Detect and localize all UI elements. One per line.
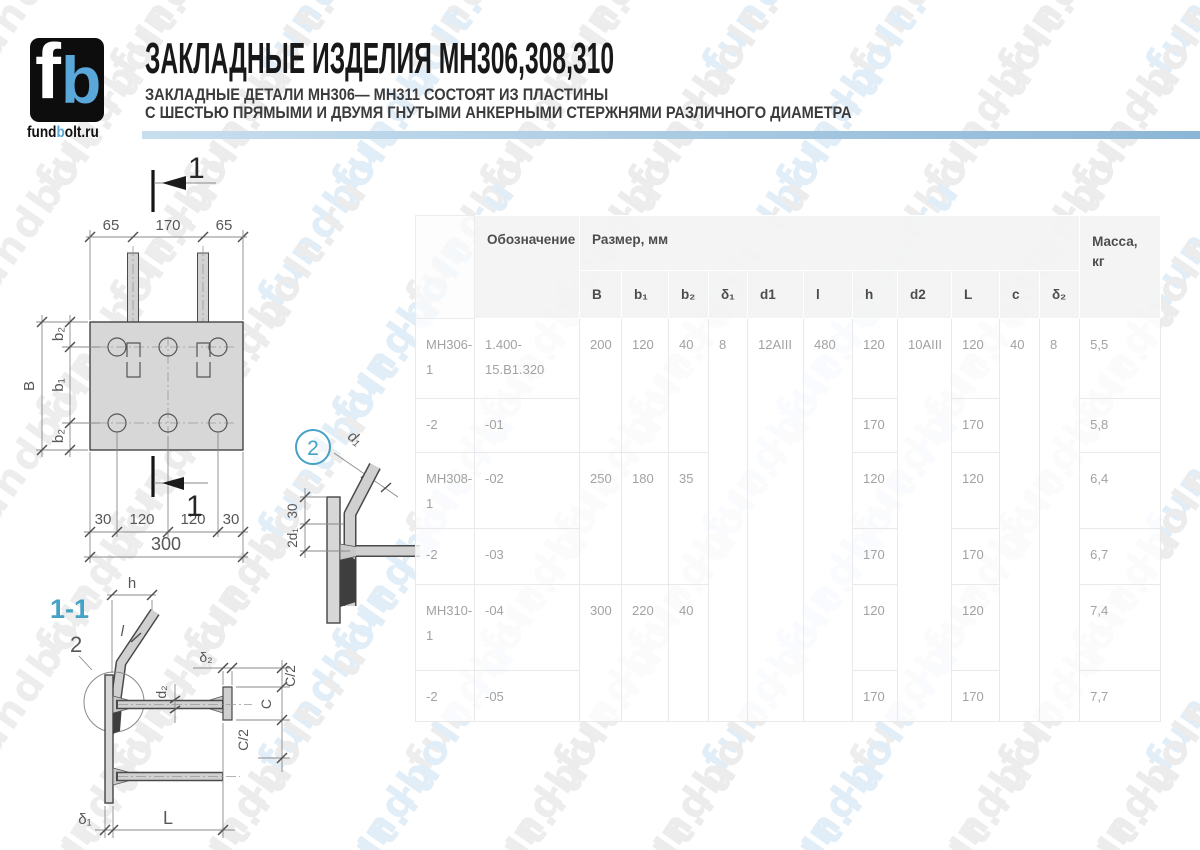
cell-designation: -03 (475, 529, 580, 585)
cell-name: МН310-1 (416, 585, 475, 671)
cell-designation: -02 (475, 453, 580, 529)
cell-L: 120 (952, 319, 1000, 399)
cell-b1: 180 (622, 453, 669, 585)
dim-d2-label: d₂ (153, 685, 169, 698)
logo-letter-f: f (35, 38, 61, 117)
header-col-b1: b₁ (622, 271, 669, 319)
dim-L-label: L (163, 808, 173, 828)
cell-designation: -05 (475, 671, 580, 722)
header-mass: Масса, кг (1080, 216, 1161, 319)
dim-top-left: 65 (103, 217, 120, 234)
detail-2-view: 2 d₁ 30 2d₁ (285, 428, 420, 623)
detail-bubble-2: 2 (307, 437, 319, 460)
header-size-mm: Размер, мм (580, 216, 1080, 271)
cell-h: 170 (853, 671, 898, 722)
dim-30-label: 30 (285, 503, 300, 518)
cell-mass: 7,4 (1080, 585, 1161, 671)
fundbolt-logo: f b (30, 38, 104, 122)
cell-l: 480 (804, 319, 853, 722)
cell-h: 170 (853, 529, 898, 585)
header-empty (416, 216, 475, 319)
dim-bottom-30-right: 30 (223, 511, 240, 528)
section-1-1-view: 1-1 h l 2 (50, 575, 298, 838)
dim-bottom-120-left: 120 (129, 511, 154, 528)
cell-designation: -04 (475, 585, 580, 671)
plan-view: 1 65 170 65 (21, 152, 248, 563)
cell-B: 250 (580, 453, 622, 585)
header-designation: Обозначение (475, 216, 580, 319)
dim-bottom-300: 300 (151, 534, 181, 554)
cell-B: 300 (580, 585, 622, 722)
cell-delta2: 8 (1040, 319, 1080, 722)
cell-name: -2 (416, 529, 475, 585)
page-title: ЗАКЛАДНЫЕ ИЗДЕЛИЯ МН306,308,310 (145, 34, 614, 84)
dim-d1-label: d₁ (344, 428, 365, 450)
header-col-delta2: δ₂ (1040, 271, 1080, 319)
logo-domain-part3: olt.ru (65, 124, 99, 141)
cell-mass: 7,7 (1080, 671, 1161, 722)
cell-b1: 220 (622, 585, 669, 722)
cell-designation: 1.400-15.В1.320 (475, 319, 580, 399)
section-mark-top: 1 (188, 152, 205, 185)
header-col-c: c (1000, 271, 1040, 319)
dim-b2-bottom: b₂ (50, 429, 67, 443)
dim-B-total: B (21, 381, 38, 391)
cell-L: 120 (952, 453, 1000, 529)
cell-designation: -01 (475, 399, 580, 453)
logo-domain-part1: fund (27, 124, 56, 141)
dim-top-middle: 170 (155, 217, 180, 234)
cell-d2: 10AIII (898, 319, 952, 722)
dim-b2-top: b₂ (50, 327, 67, 341)
cell-mass: 6,4 (1080, 453, 1161, 529)
cell-B: 200 (580, 319, 622, 453)
cell-delta1: 8 (709, 319, 748, 722)
dim-c-label: C (258, 699, 274, 709)
header-col-B: B (580, 271, 622, 319)
catalog-page: fundbolt.rufundbolt.rufundbolt.rufundbol… (0, 0, 1200, 850)
dim-delta1-label: δ₁ (78, 811, 91, 828)
section-title: 1-1 (50, 594, 89, 624)
cell-mass: 6,7 (1080, 529, 1161, 585)
cell-b2: 35 (669, 453, 709, 585)
cell-h: 120 (853, 585, 898, 671)
table-row: МН306-1 1.400-15.В1.320 200 120 40 8 12A… (416, 319, 1161, 399)
header-col-l: l (804, 271, 853, 319)
cell-h: 170 (853, 399, 898, 453)
cell-L: 120 (952, 585, 1000, 671)
header-accent-bar (142, 131, 1200, 139)
cell-h: 120 (853, 319, 898, 399)
cell-mass: 5,8 (1080, 399, 1161, 453)
cell-c: 40 (1000, 319, 1040, 722)
detail-ref-2: 2 (70, 632, 82, 657)
cell-d1: 12AIII (748, 319, 804, 722)
dimensions-table-wrap: Обозначение Размер, мм Масса, кг B b₁ b₂… (415, 215, 1161, 722)
dim-c-half-bottom: C/2 (235, 729, 251, 751)
subtitle-line-1: ЗАКЛАДНЫЕ ДЕТАЛИ МН306— МН311 СОСТОЯТ ИЗ… (145, 86, 852, 104)
dim-bottom-30-left: 30 (95, 511, 112, 528)
dim-b1: b₁ (50, 378, 67, 391)
cell-b1: 120 (622, 319, 669, 453)
cell-name: -2 (416, 671, 475, 722)
dim-h-label: h (128, 575, 136, 592)
cell-L: 170 (952, 529, 1000, 585)
cell-name: -2 (416, 399, 475, 453)
dim-top-right: 65 (216, 217, 233, 234)
header-col-delta1: δ₁ (709, 271, 748, 319)
header-col-d2: d2 (898, 271, 952, 319)
header-col-L: L (952, 271, 1000, 319)
dim-delta2-label: δ₂ (199, 649, 212, 665)
page-subtitle: ЗАКЛАДНЫЕ ДЕТАЛИ МН306— МН311 СОСТОЯТ ИЗ… (145, 86, 852, 122)
cell-name: МН306-1 (416, 319, 475, 399)
header-col-h: h (853, 271, 898, 319)
cell-h: 120 (853, 453, 898, 529)
cell-L: 170 (952, 399, 1000, 453)
header-col-b2: b₂ (669, 271, 709, 319)
dimensions-table: Обозначение Размер, мм Масса, кг B b₁ b₂… (415, 215, 1161, 722)
cell-mass: 5,5 (1080, 319, 1161, 399)
logo-domain-text: fundbolt.ru (27, 124, 104, 142)
dim-2d1-label: 2d₁ (285, 528, 300, 548)
cell-name: МН308-1 (416, 453, 475, 529)
subtitle-line-2: С ШЕСТЬЮ ПРЯМЫМИ И ДВУМЯ ГНУТЫМИ АНКЕРНЫ… (145, 104, 852, 122)
dim-l-label: l (121, 623, 125, 640)
cell-b2: 40 (669, 319, 709, 453)
section-mark-bottom: 1 (186, 490, 203, 523)
cell-L: 170 (952, 671, 1000, 722)
logo-letter-b: b (61, 42, 101, 118)
dim-c-half-top: C/2 (282, 665, 298, 687)
header-col-d1: d1 (748, 271, 804, 319)
cell-b2: 40 (669, 585, 709, 722)
